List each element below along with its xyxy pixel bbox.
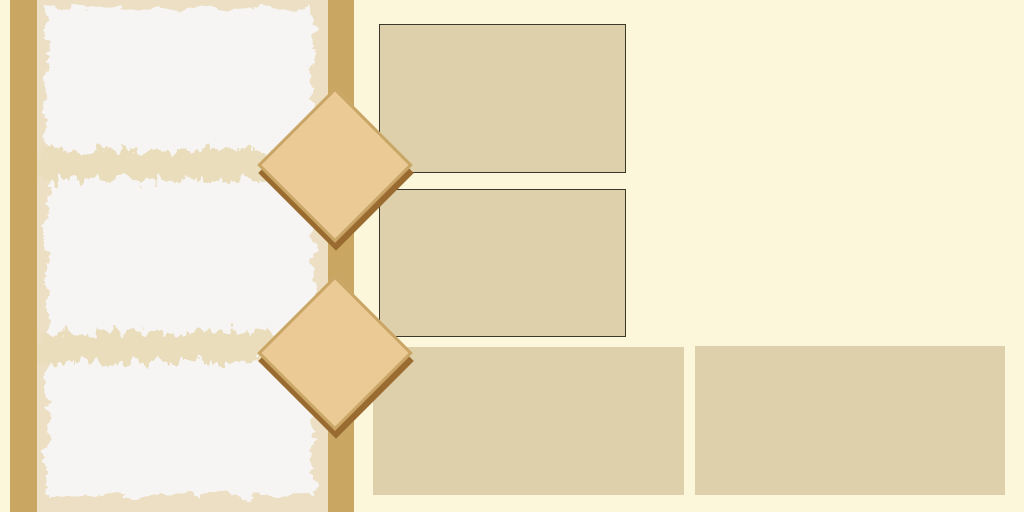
- page-background: [0, 0, 1024, 512]
- placeholder-card-bottom-left[interactable]: [373, 347, 684, 495]
- placeholder-card-middle[interactable]: [379, 189, 626, 337]
- torn-paper-strip: [37, 0, 328, 512]
- diamond-face-shape: [257, 87, 413, 243]
- tan-stripe-outer: [10, 0, 37, 512]
- placeholder-card-bottom-right[interactable]: [695, 346, 1005, 495]
- diamond-ornament-top: [280, 110, 390, 220]
- diamond-ornament-bottom: [280, 298, 390, 408]
- placeholder-card-top[interactable]: [379, 24, 626, 173]
- diamond-face-shape: [257, 275, 413, 431]
- paper-sheet: [47, 8, 313, 496]
